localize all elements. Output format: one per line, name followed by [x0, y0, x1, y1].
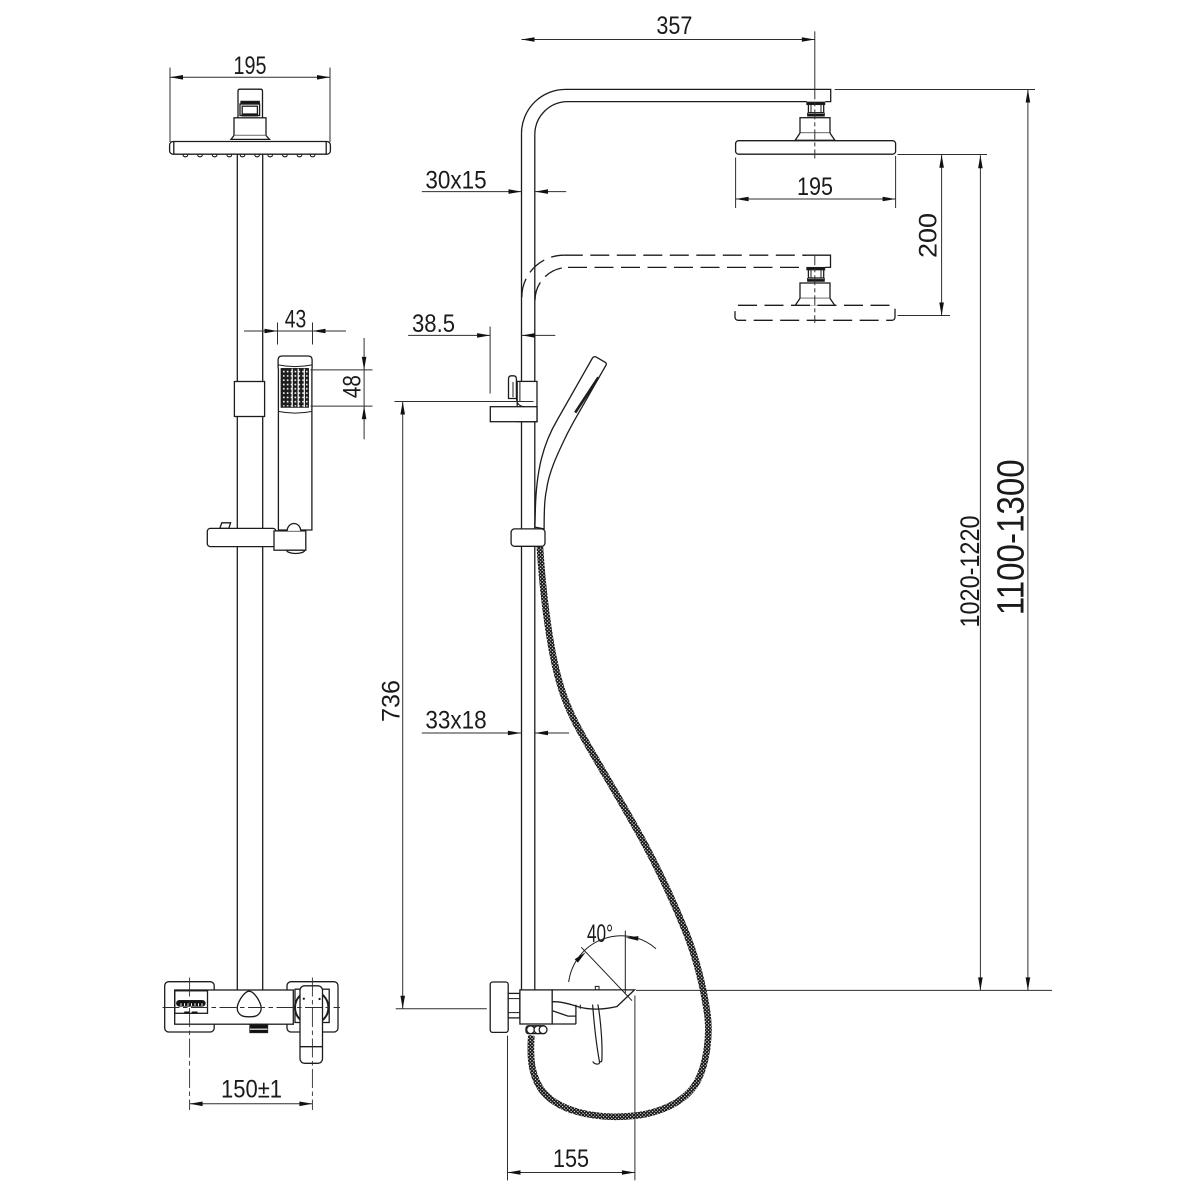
svg-text:43: 43	[285, 306, 307, 334]
svg-text:1100-1300: 1100-1300	[991, 459, 1033, 615]
svg-text:155: 155	[553, 1145, 589, 1173]
svg-text:40°: 40°	[587, 920, 613, 948]
svg-text:200: 200	[915, 213, 943, 258]
svg-text:33x18: 33x18	[425, 707, 486, 735]
svg-text:38.5: 38.5	[412, 310, 455, 338]
svg-text:48: 48	[339, 375, 367, 398]
svg-text:1020-1220: 1020-1220	[955, 516, 985, 628]
svg-text:357: 357	[656, 12, 692, 40]
svg-text:150±1: 150±1	[221, 1076, 282, 1104]
svg-text:736: 736	[378, 680, 406, 722]
svg-text:195: 195	[797, 173, 833, 201]
svg-text:30x15: 30x15	[425, 167, 486, 195]
svg-text:195: 195	[234, 52, 267, 80]
